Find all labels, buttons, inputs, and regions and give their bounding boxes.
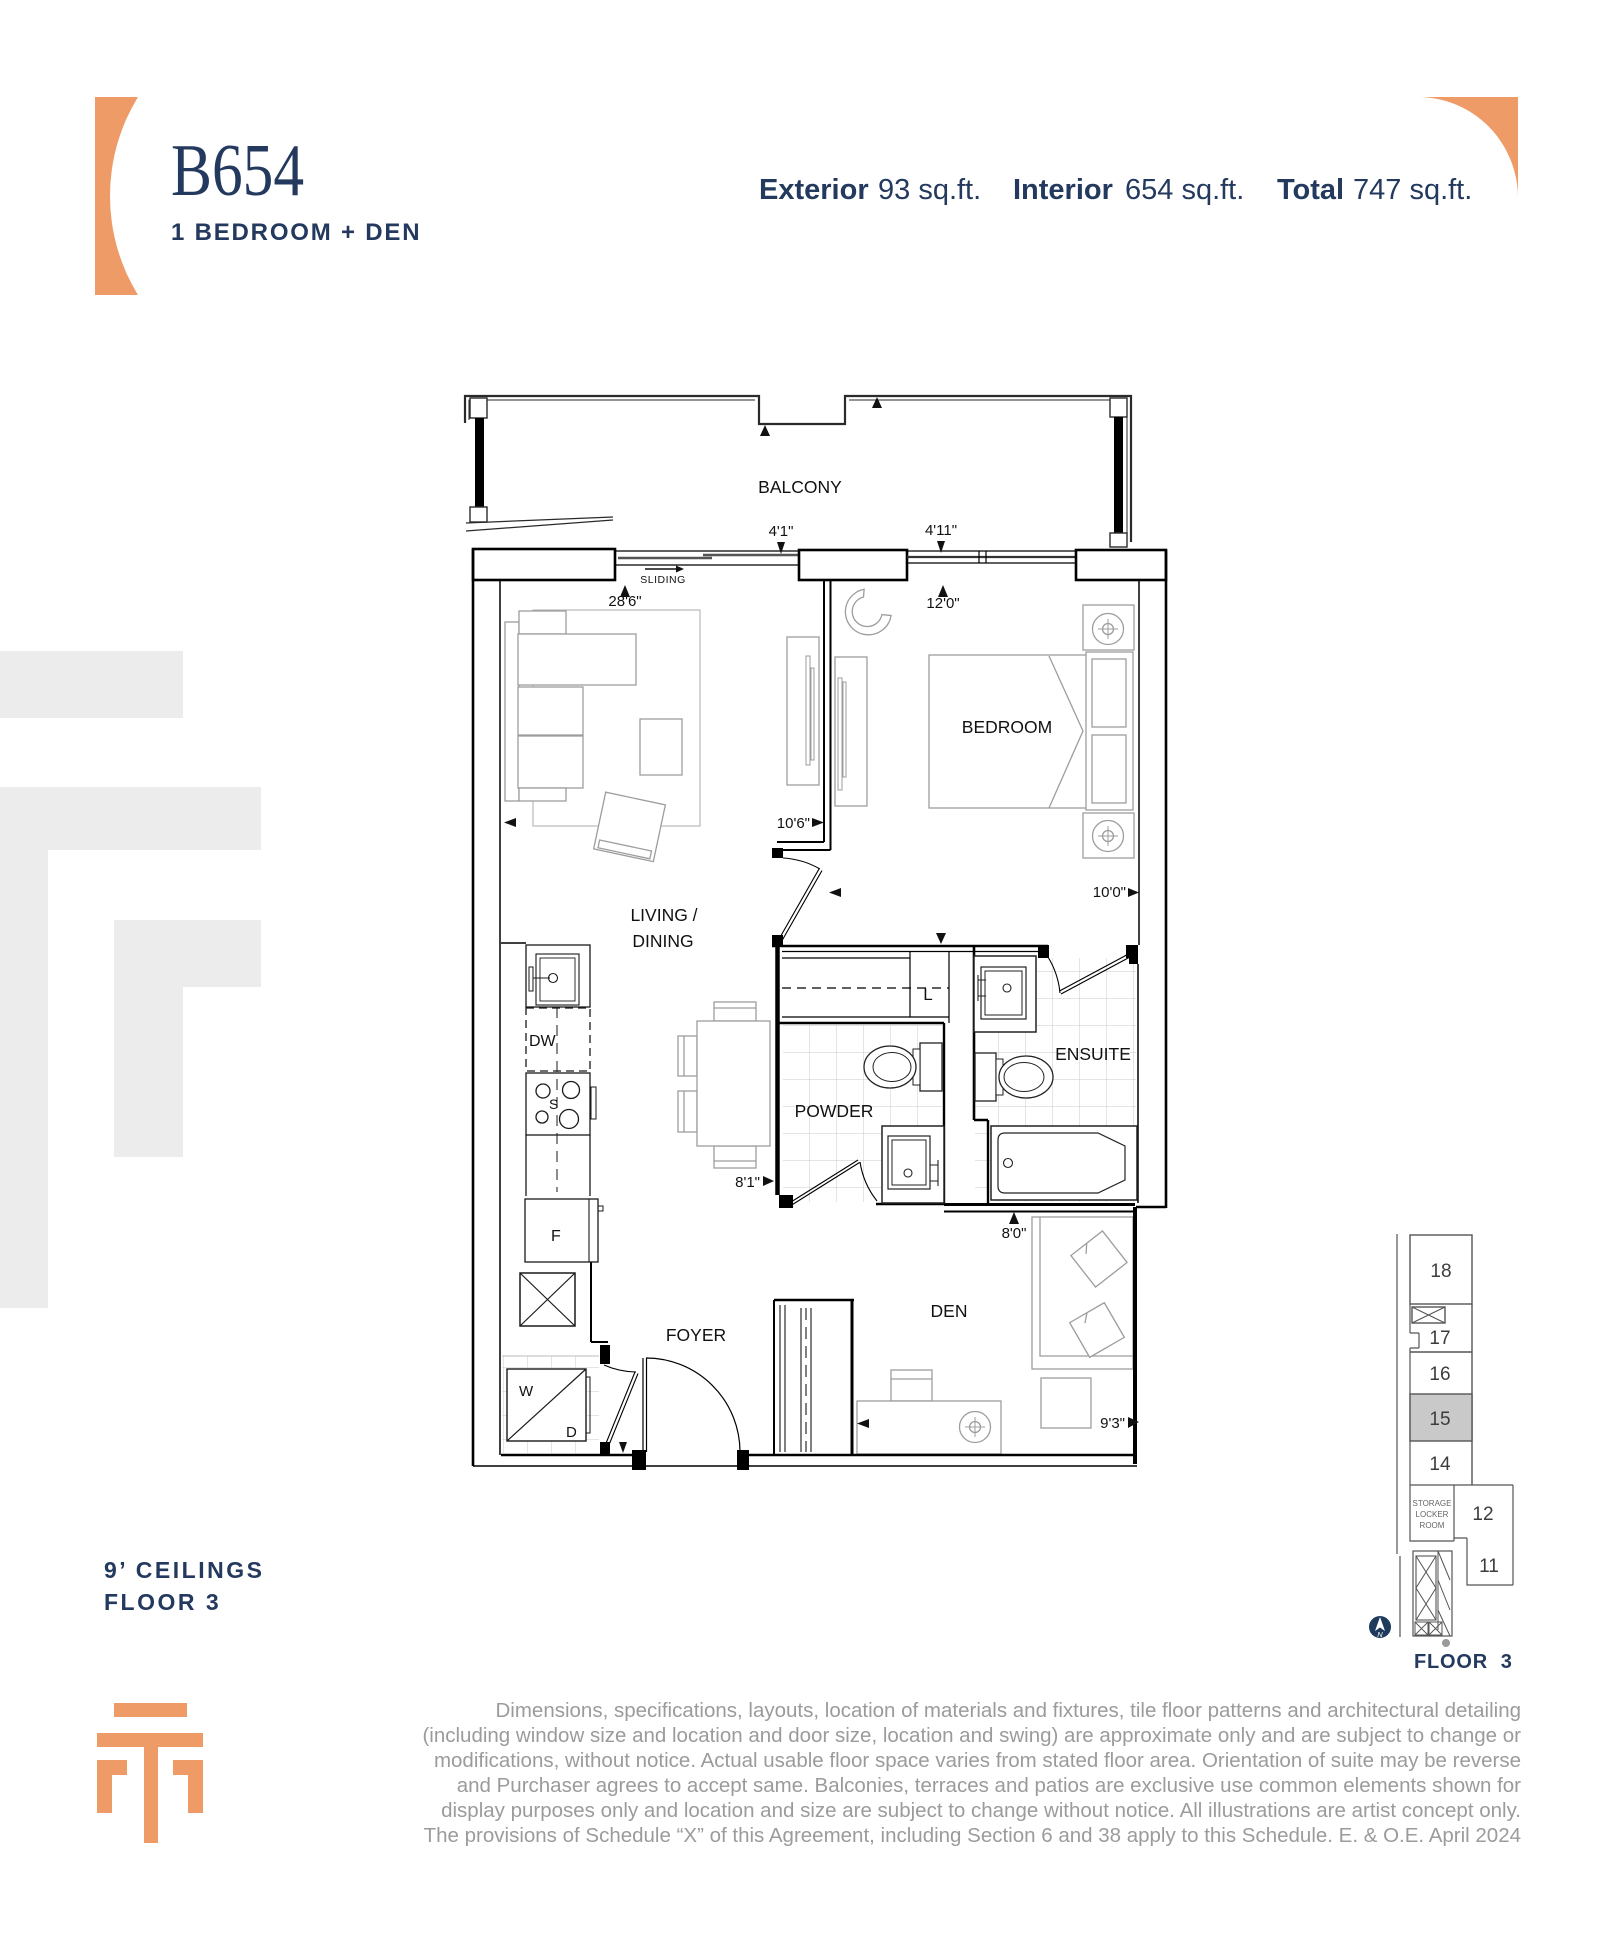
svg-text:S: S xyxy=(549,1096,558,1112)
svg-text:12'0": 12'0" xyxy=(926,595,959,612)
svg-text:Exterior: Exterior xyxy=(759,174,869,206)
svg-text:L: L xyxy=(923,985,932,1004)
svg-text:9'3": 9'3" xyxy=(1100,1415,1125,1432)
svg-text:FLOOR 3: FLOOR 3 xyxy=(104,1589,221,1615)
svg-text:modifications, without notice.: modifications, without notice. Actual us… xyxy=(434,1749,1521,1772)
svg-text:F: F xyxy=(551,1228,561,1245)
svg-text:654 sq.ft.: 654 sq.ft. xyxy=(1125,174,1244,206)
svg-text:LOCKER: LOCKER xyxy=(1416,1510,1449,1519)
svg-text:10'6": 10'6" xyxy=(777,815,810,832)
svg-text:9’ CEILINGS: 9’ CEILINGS xyxy=(104,1557,264,1583)
svg-text:BALCONY: BALCONY xyxy=(758,477,842,497)
svg-text:Dimensions, specifications, la: Dimensions, specifications, layouts, loc… xyxy=(495,1699,1521,1722)
svg-text:FOYER: FOYER xyxy=(666,1325,726,1345)
svg-text:14: 14 xyxy=(1429,1454,1451,1475)
svg-text:18: 18 xyxy=(1430,1261,1451,1282)
svg-text:8'1": 8'1" xyxy=(735,1174,760,1191)
svg-text:1 BEDROOM + DEN: 1 BEDROOM + DEN xyxy=(171,219,421,246)
svg-text:D: D xyxy=(566,1424,577,1441)
svg-text:DEN: DEN xyxy=(931,1301,968,1321)
svg-text:B654: B654 xyxy=(171,129,304,212)
svg-text:SLIDING: SLIDING xyxy=(640,574,686,586)
svg-text:Interior: Interior xyxy=(1013,174,1113,206)
svg-text:Total: Total xyxy=(1277,174,1344,206)
svg-text:11: 11 xyxy=(1479,1556,1499,1577)
svg-text:STORAGE: STORAGE xyxy=(1413,1499,1452,1508)
svg-text:93 sq.ft.: 93 sq.ft. xyxy=(878,174,981,206)
svg-text:BEDROOM: BEDROOM xyxy=(962,717,1052,737)
svg-text:747 sq.ft.: 747 sq.ft. xyxy=(1353,174,1472,206)
svg-text:The provisions of Schedule “X”: The provisions of Schedule “X” of this A… xyxy=(424,1824,1521,1847)
svg-text:16: 16 xyxy=(1429,1364,1450,1385)
svg-text:12: 12 xyxy=(1472,1504,1493,1525)
svg-text:display purposes only and loca: display purposes only and location and s… xyxy=(441,1799,1521,1822)
svg-text:(including window size and loc: (including window size and location and … xyxy=(422,1724,1521,1747)
svg-text:DINING: DINING xyxy=(632,931,693,951)
svg-text:POWDER: POWDER xyxy=(795,1101,874,1121)
svg-text:8'0": 8'0" xyxy=(1002,1225,1027,1242)
svg-text:10'0": 10'0" xyxy=(1093,884,1126,901)
svg-text:DW: DW xyxy=(529,1033,557,1050)
svg-text:ENSUITE: ENSUITE xyxy=(1055,1044,1131,1064)
svg-text:and Purchaser agrees to accept: and Purchaser agrees to accept same. Bal… xyxy=(457,1774,1521,1797)
svg-text:15: 15 xyxy=(1429,1409,1450,1430)
svg-text:ROOM: ROOM xyxy=(1420,1521,1445,1530)
svg-text:N: N xyxy=(1377,1630,1383,1639)
svg-text:FLOOR 3: FLOOR 3 xyxy=(1414,1651,1513,1673)
svg-text:4'1": 4'1" xyxy=(769,523,794,540)
svg-text:17: 17 xyxy=(1429,1328,1450,1349)
svg-text:4'11": 4'11" xyxy=(925,522,957,539)
svg-text:LIVING /: LIVING / xyxy=(630,905,697,925)
svg-text:W: W xyxy=(519,1383,534,1400)
